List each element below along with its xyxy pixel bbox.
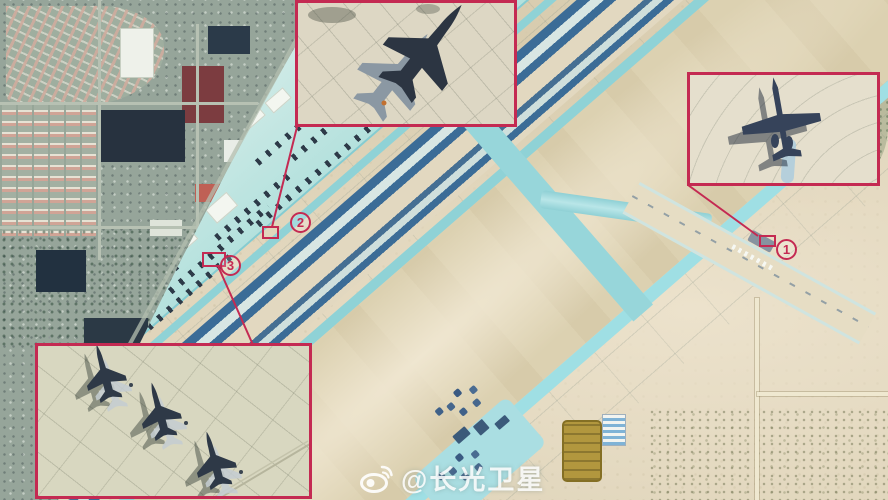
ground-cart — [129, 383, 133, 387]
engine-nacelle — [785, 136, 793, 150]
marker-circle-2: 2 — [290, 212, 311, 233]
ground-cart — [239, 470, 243, 474]
fighter-jet — [132, 377, 186, 443]
target-box-1 — [760, 236, 775, 246]
inset-closeup-3-jets — [35, 343, 312, 499]
inset-closeup-2-fighters — [295, 0, 517, 127]
leader-line-2 — [272, 127, 297, 227]
jet-row-closeup — [38, 346, 312, 499]
satellite-image: 1 2 3 @长光卫星 — [0, 0, 888, 500]
engine-nacelle — [771, 134, 779, 148]
ground-cart — [184, 421, 188, 425]
attack-aircraft — [734, 75, 826, 166]
watermark-handle: @长光卫星 — [401, 458, 545, 497]
weibo-icon — [360, 463, 394, 493]
leader-line-1 — [688, 185, 758, 236]
tarmac-smudge — [308, 7, 356, 23]
ground-equipment — [382, 101, 387, 106]
inset-closeup-1-aircraft — [687, 72, 880, 186]
marker-circle-3: 3 — [220, 255, 241, 276]
leader-line-3 — [218, 266, 253, 345]
aircraft-closeup — [690, 75, 880, 186]
fighter-jets-closeup — [298, 3, 517, 127]
fighter-jet — [187, 426, 241, 492]
target-box-2 — [263, 227, 278, 238]
tarmac-smudge — [416, 4, 440, 14]
watermark: @长光卫星 — [360, 458, 545, 497]
marker-circle-1: 1 — [776, 239, 797, 260]
